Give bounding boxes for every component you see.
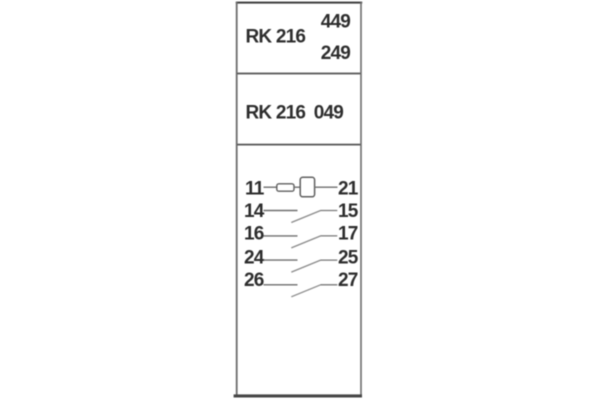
- svg-text:26: 26: [244, 270, 264, 291]
- svg-text:15: 15: [338, 201, 359, 222]
- svg-text:249: 249: [321, 43, 351, 64]
- svg-text:RK 216: RK 216: [246, 27, 306, 48]
- svg-text:25: 25: [338, 247, 359, 268]
- svg-text:21: 21: [338, 178, 359, 199]
- svg-text:24: 24: [244, 247, 265, 268]
- svg-text:17: 17: [338, 224, 358, 245]
- svg-text:049: 049: [314, 103, 344, 124]
- svg-text:RK 216: RK 216: [246, 103, 306, 124]
- svg-text:449: 449: [321, 12, 351, 33]
- svg-text:14: 14: [244, 201, 265, 222]
- svg-text:11: 11: [245, 178, 265, 199]
- svg-text:27: 27: [338, 270, 358, 291]
- svg-text:16: 16: [244, 224, 264, 245]
